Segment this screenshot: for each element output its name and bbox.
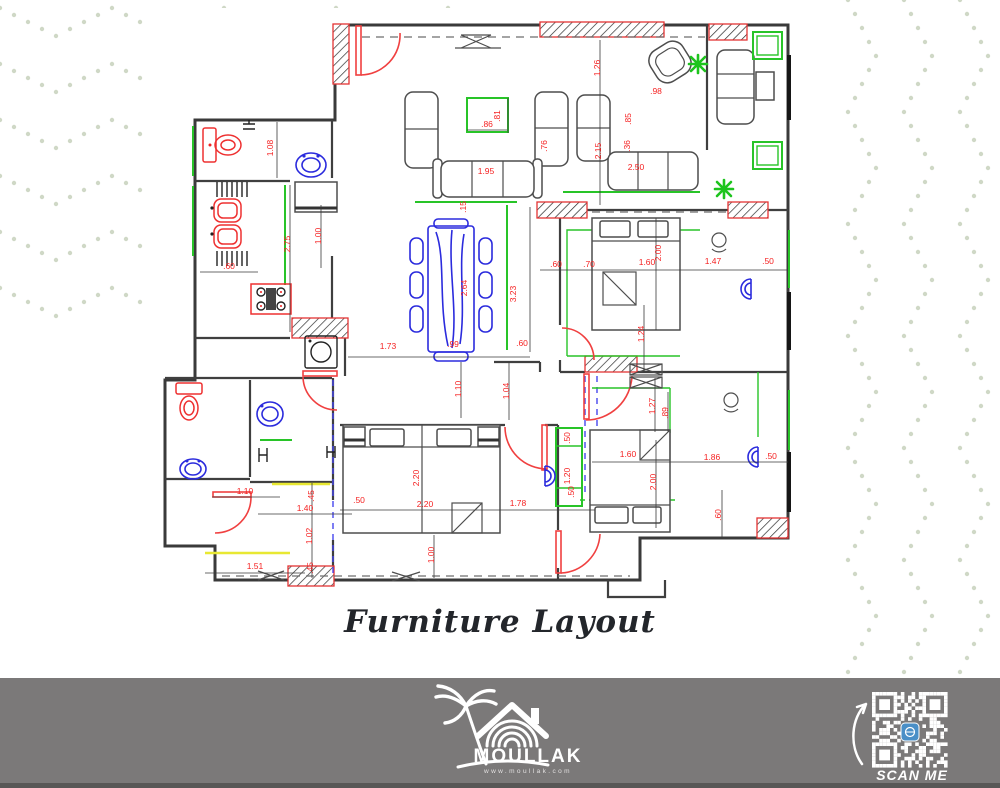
dimension-label: 2.64	[459, 279, 469, 296]
double-bed	[343, 425, 500, 533]
dimension-label: .60	[713, 509, 723, 521]
dimension-label: 2.50	[628, 162, 645, 172]
dimension-label: 1.73	[380, 341, 397, 351]
dimension-label: 2.15	[593, 142, 603, 159]
dimension-label: .50	[562, 432, 572, 444]
bed	[590, 430, 670, 532]
dimension-label: .60	[516, 338, 528, 348]
dimension-label: 1.95	[478, 166, 495, 176]
sofa	[535, 92, 568, 166]
dimension-label: 1.00	[313, 227, 323, 244]
dimension-label: .50	[566, 486, 576, 498]
dimension-label: 1.04	[501, 382, 511, 399]
dimension-label: 1.40	[297, 503, 314, 513]
dimension-label: .76	[539, 140, 549, 152]
dimension-label: .99	[447, 339, 459, 349]
dimension-label: .81	[492, 110, 502, 122]
dimension-label: .89	[660, 407, 670, 419]
background-pattern-right	[824, 0, 1000, 682]
dimension-label: 2.00	[653, 244, 663, 261]
dimension-label: 1.08	[265, 139, 275, 156]
three-seat-sofa	[433, 159, 542, 198]
dimension-label: 1.10	[453, 380, 463, 397]
footer: MOULLAK www.moullak.com SCAN ME	[0, 678, 1000, 788]
footer-bottom-strip	[0, 783, 1000, 788]
side-table	[756, 72, 774, 100]
dimension-label: 1.51	[247, 561, 264, 571]
dimension-label: .60	[223, 261, 235, 271]
fridge-icon	[295, 182, 337, 212]
dimension-label: 3.23	[508, 285, 518, 302]
brand-website: www.moullak.com	[483, 768, 572, 775]
dimension-label: 1.20	[562, 467, 572, 484]
page: 1.081.26.98.86.81.76.85.362.151.952.50.1…	[0, 0, 1000, 788]
dimension-label: 1.86	[704, 452, 721, 462]
dimension-label: 1.60	[620, 449, 637, 459]
scan-me-label: SCAN ME	[876, 767, 948, 783]
dimension-label: 1.10	[237, 486, 254, 496]
dimension-label: 1.24	[636, 325, 646, 342]
sofa	[405, 92, 438, 168]
bench-seat	[717, 50, 754, 124]
dimension-label: .85	[623, 113, 633, 125]
plan-title: Furniture Layout	[343, 604, 656, 640]
dimension-label: 1.02	[304, 527, 314, 544]
dimension-label: 1.00	[426, 546, 436, 563]
dimension-label: .15	[458, 201, 468, 213]
dimension-label: .98	[650, 86, 662, 96]
dimension-label: 1.27	[647, 397, 657, 414]
dimension-label: .45	[305, 562, 315, 574]
dimension-label: 2.20	[411, 469, 421, 486]
brand-name: MOULLAK	[474, 746, 583, 767]
dimension-label: .50	[762, 256, 774, 266]
dimension-label: 1.78	[510, 498, 527, 508]
dimension-label: 1.47	[705, 256, 722, 266]
dimension-label: .50	[765, 451, 777, 461]
dimension-label: 2.20	[417, 499, 434, 509]
dimension-label: 2.00	[648, 473, 658, 490]
dimension-label: .45	[306, 490, 316, 502]
dimension-label: .50	[353, 495, 365, 505]
scene-svg: 1.081.26.98.86.81.76.85.362.151.952.50.1…	[0, 0, 1000, 788]
dimension-label: 1.26	[592, 59, 602, 76]
dimension-label: .70	[583, 259, 595, 269]
qr-center-icon	[901, 723, 919, 741]
dimension-label: .60	[550, 259, 562, 269]
dimension-label: 2.75	[282, 235, 292, 252]
bed	[592, 218, 680, 330]
dimension-label: .36	[622, 140, 632, 152]
